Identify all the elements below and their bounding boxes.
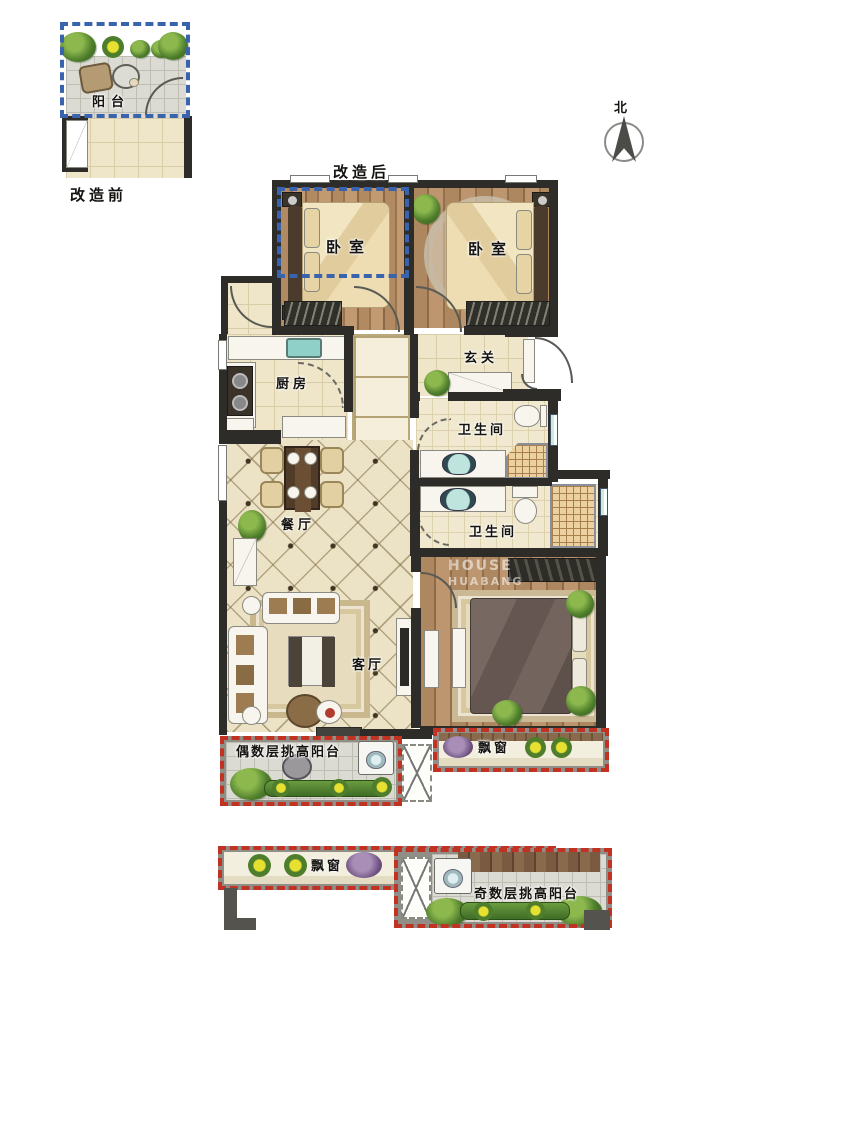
floorplan-image: 阳台 改造前 北 (0, 0, 850, 1133)
label-balcony-odd: 奇数层挑高阳台 (474, 888, 579, 901)
label-kitchen: 厨房 (276, 378, 310, 391)
label-bay-window-lower: 飘窗 (311, 860, 343, 873)
label-balcony-even: 偶数层挑高阳台 (236, 746, 341, 759)
label-living: 客厅 (352, 659, 384, 672)
label-bath-lower: 卫生间 (469, 526, 517, 539)
labels: 改造后 卧室 卧室 厨房 玄关 卫生间 卫生间 餐厅 客厅 偶数层挑高阳台 飘窗… (0, 0, 850, 1133)
label-bedroom-right: 卧室 (468, 242, 514, 257)
plan-caption: 改造后 (333, 165, 390, 180)
label-foyer: 玄关 (464, 352, 498, 365)
label-bedroom-left: 卧室 (326, 240, 372, 255)
label-bath-upper: 卫生间 (458, 424, 506, 437)
label-bay-window-main: 飘窗 (478, 742, 510, 755)
label-dining: 餐厅 (281, 519, 315, 532)
